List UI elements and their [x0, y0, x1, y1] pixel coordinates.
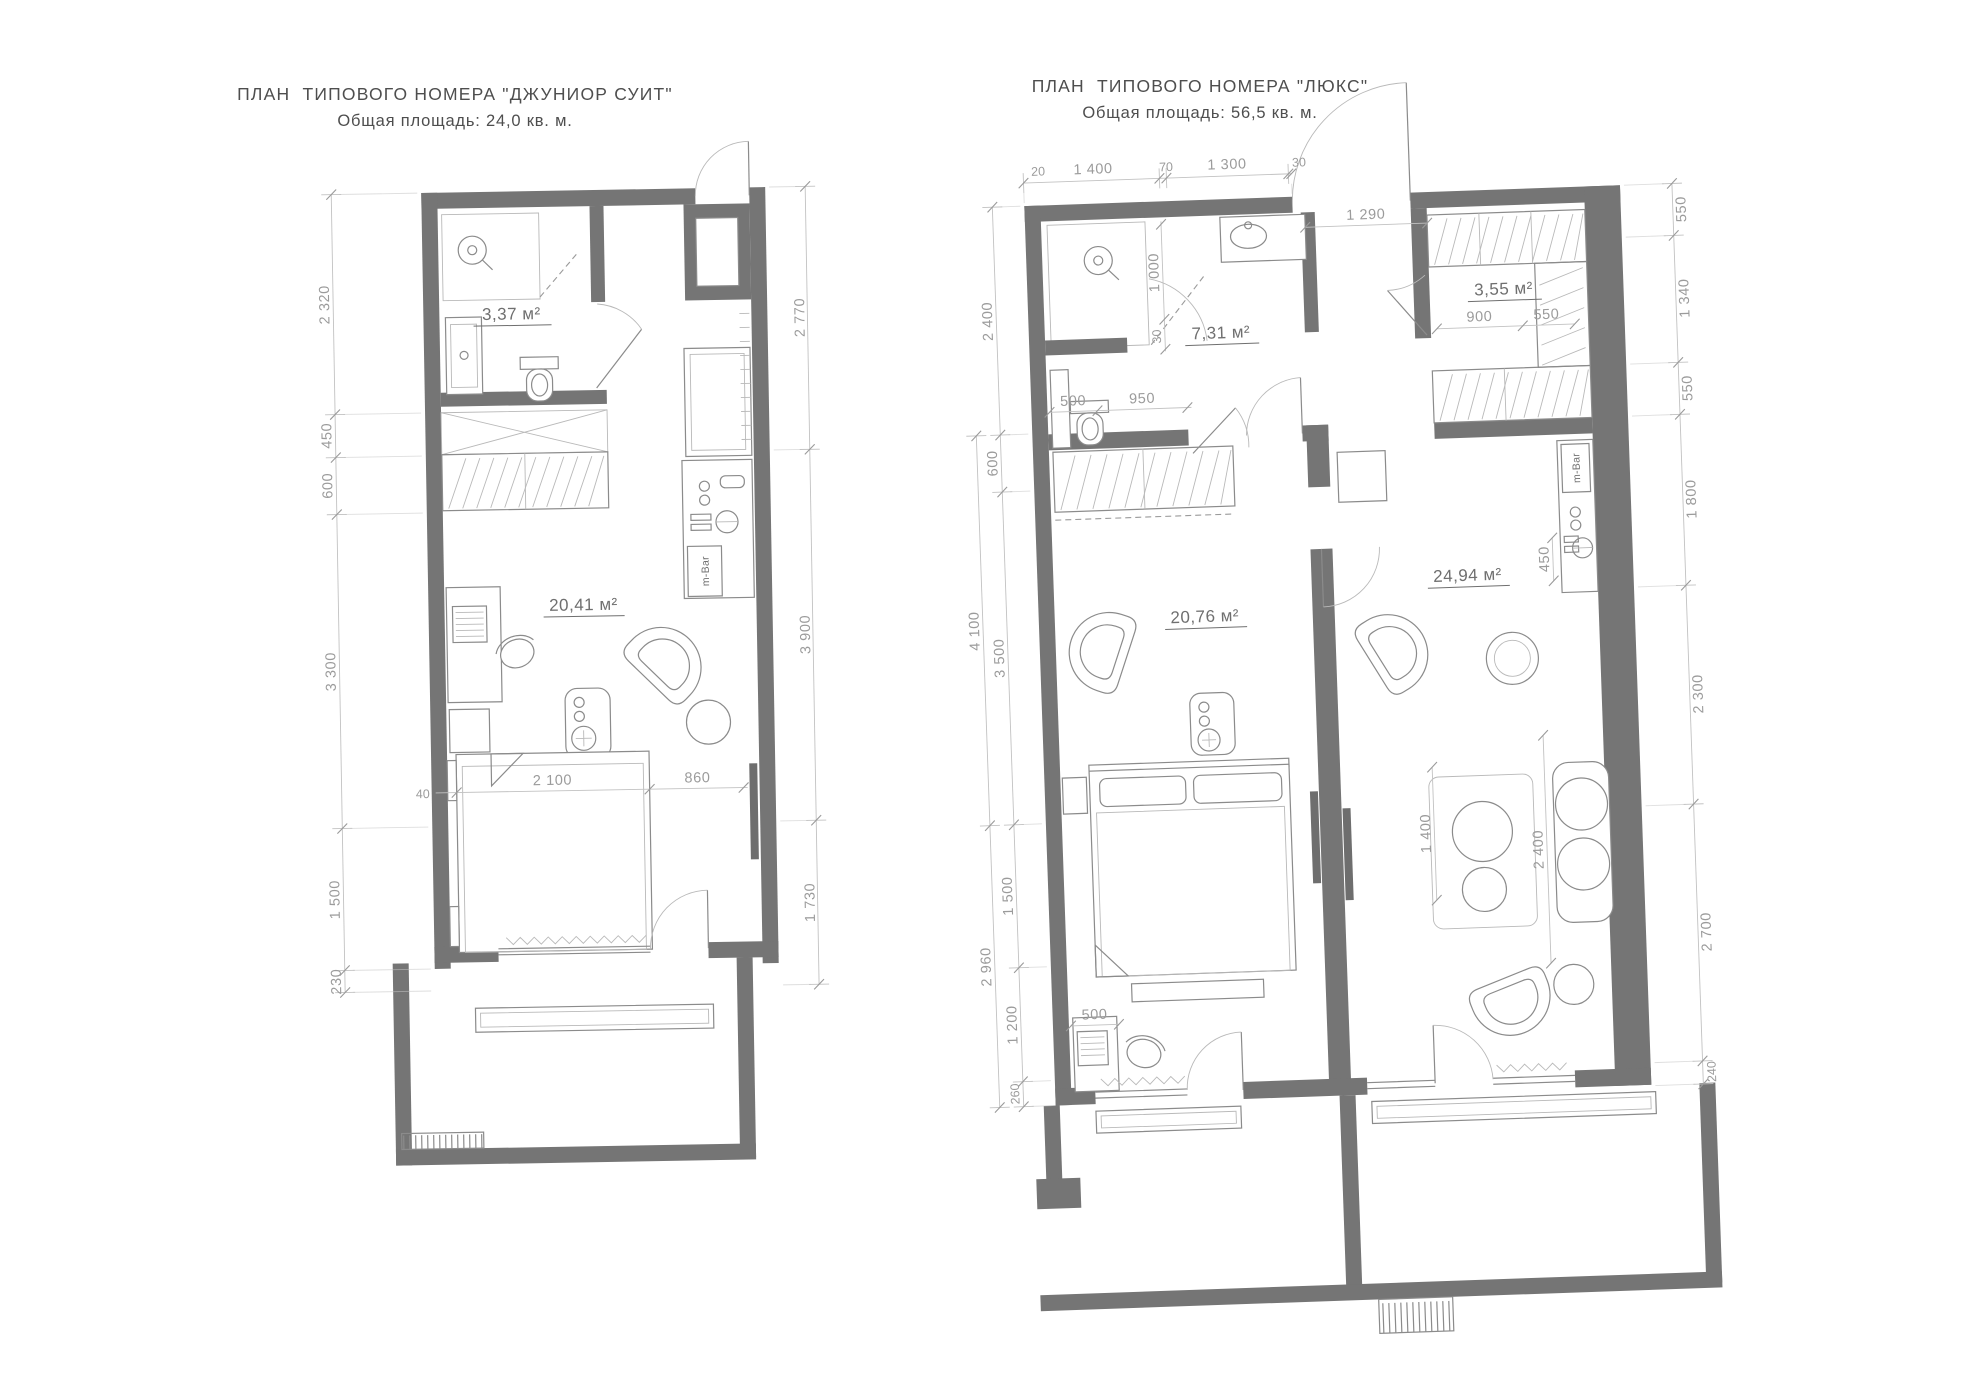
lux-coffee-tables: [1428, 774, 1537, 930]
dim-label: 450: [1536, 546, 1553, 573]
junior-bathroom-area-label: 3,37 м²: [482, 304, 541, 324]
lux-living-pouf-top: [1485, 631, 1539, 685]
dim-label: 1 500: [327, 880, 344, 920]
junior-dims-left: 2 320 450 600 3 300 1 500 230: [315, 188, 431, 998]
lux-living-curtain: [1497, 1063, 1567, 1072]
lux-wardrobe-area-label: 3,55 м²: [1474, 278, 1533, 299]
floorplan-sheet: ПЛАН ТИПОВОГО НОМЕРА "ДЖУНИОР СУИТ" Обща…: [0, 0, 1980, 1400]
lux-dims-top: 20 1 400 70 1 300 30: [1018, 154, 1307, 203]
dim-label: 1 000: [1146, 253, 1163, 293]
dim-label: 240: [1705, 1061, 1720, 1082]
dim-label: 1 400: [1418, 814, 1435, 854]
lux-living-armchair-bottom: [1466, 964, 1562, 1048]
junior-room-area-label: 20,41 м²: [549, 595, 618, 615]
lux-terrace-grate: [1383, 1301, 1450, 1333]
dim-label: 230: [329, 969, 345, 995]
dim-label: 1 400: [1073, 161, 1113, 178]
junior-bathroom: [442, 211, 643, 402]
junior-plan: m-Bar: [314, 140, 832, 1167]
junior-minibar-label: m-Bar: [700, 556, 713, 586]
dim-label: 40: [416, 787, 430, 801]
dim-label: 3 900: [798, 615, 815, 655]
junior-balcony-grate: [404, 1134, 482, 1149]
dim-label: 3 300: [323, 652, 340, 692]
dim-label: 2 320: [317, 285, 334, 325]
dim-label: 2 960: [978, 947, 995, 987]
lux-bathroom-area-label: 7,31 м²: [1191, 322, 1250, 343]
dim-label: 260: [1008, 1083, 1023, 1104]
dim-label: 600: [985, 450, 1002, 477]
dim-label: 4 100: [966, 611, 983, 651]
junior-dims-right: 2 770 3 900 1 730: [769, 181, 829, 990]
lux-bedroom-door: [1244, 378, 1302, 436]
junior-desk: [446, 587, 503, 753]
dim-label: 2 100: [533, 773, 573, 790]
lux-hall-console: [1337, 451, 1387, 503]
lux-desk-chair: [1121, 1032, 1167, 1072]
lux-bed: [1062, 758, 1297, 1004]
dim-label: 1 290: [1346, 207, 1386, 224]
dim-label: 30: [1292, 155, 1306, 169]
lux-plan: m-Bar: [949, 73, 1729, 1347]
lux-entrance-door: [1288, 83, 1410, 205]
junior-entrance-door: [694, 141, 749, 196]
dim-label: 500: [1081, 1007, 1108, 1024]
dim-label: 950: [1129, 391, 1156, 408]
lux-kitchenette: m-Bar: [1557, 439, 1598, 592]
dim-label: 1 340: [1676, 278, 1693, 318]
junior-armchair: [620, 611, 718, 708]
junior-luggage-rack: [441, 410, 608, 455]
lux-sofa: [1552, 761, 1614, 923]
dim-label: 550: [1673, 196, 1690, 223]
dim-label: 900: [1466, 309, 1493, 326]
dim-label: 550: [1533, 306, 1560, 323]
dim-label: 550: [1680, 375, 1697, 402]
junior-wardrobe: [442, 452, 609, 511]
dim-label: 450: [319, 423, 335, 449]
junior-decor-stand: [565, 688, 611, 759]
dim-label: 1 500: [1000, 876, 1017, 916]
dim-label: 3 500: [991, 638, 1008, 678]
junior-tv: [749, 763, 759, 859]
lux-bedroom-closet: [1053, 446, 1235, 520]
lux-dims-wardrobe: 900 550: [1431, 306, 1580, 334]
dim-label: 1 200: [1004, 1005, 1021, 1045]
lux-bedroom-terrace-door: [1185, 1032, 1243, 1092]
lux-dims-left-outer: 4 100 2 960: [960, 431, 1010, 1113]
dim-label: 500: [1060, 393, 1087, 410]
dim-label: 1 300: [1207, 156, 1247, 173]
lux-shower-icon: [1084, 246, 1119, 281]
lux-bedroom-decor-stand: [1189, 692, 1235, 755]
dim-label: 2 400: [980, 302, 997, 342]
junior-shower-icon: [458, 236, 493, 271]
dim-label: 2 770: [792, 298, 809, 338]
dim-label: 1 800: [1683, 479, 1700, 519]
lux-living-terrace-door: [1433, 1023, 1493, 1083]
junior-bathroom-door: [595, 303, 642, 388]
dim-label: 2 300: [1690, 674, 1707, 714]
dim-label: 30: [1150, 329, 1164, 343]
floorplan-drawing: m-Bar: [0, 0, 1980, 1400]
lux-bedroom-armchair: [1059, 602, 1139, 696]
junior-kitchenette: m-Bar: [680, 347, 754, 598]
dim-label: 2 700: [1698, 912, 1715, 952]
dim-label: 70: [1159, 160, 1173, 174]
lux-minibar-label: m-Bar: [1570, 453, 1583, 484]
dim-label: 2 400: [1530, 830, 1547, 870]
lux-bathroom: [1041, 214, 1313, 458]
junior-balcony-door: [649, 890, 708, 949]
lux-wardrobe-room: [1427, 210, 1592, 423]
lux-desk: [1073, 1016, 1120, 1091]
junior-side-table: [686, 700, 731, 745]
dim-label: 20: [1031, 164, 1045, 178]
lux-living-armchair: [1351, 600, 1443, 699]
dim-label: 860: [684, 770, 710, 786]
lux-bedroom-area-label: 20,76 м²: [1170, 606, 1239, 627]
dim-label: 1 730: [802, 883, 819, 923]
dim-label: 600: [320, 473, 336, 499]
lux-living-area-label: 24,94 м²: [1433, 565, 1502, 586]
junior-balcony: [399, 1004, 715, 1149]
lux-living-side-table: [1553, 964, 1594, 1005]
